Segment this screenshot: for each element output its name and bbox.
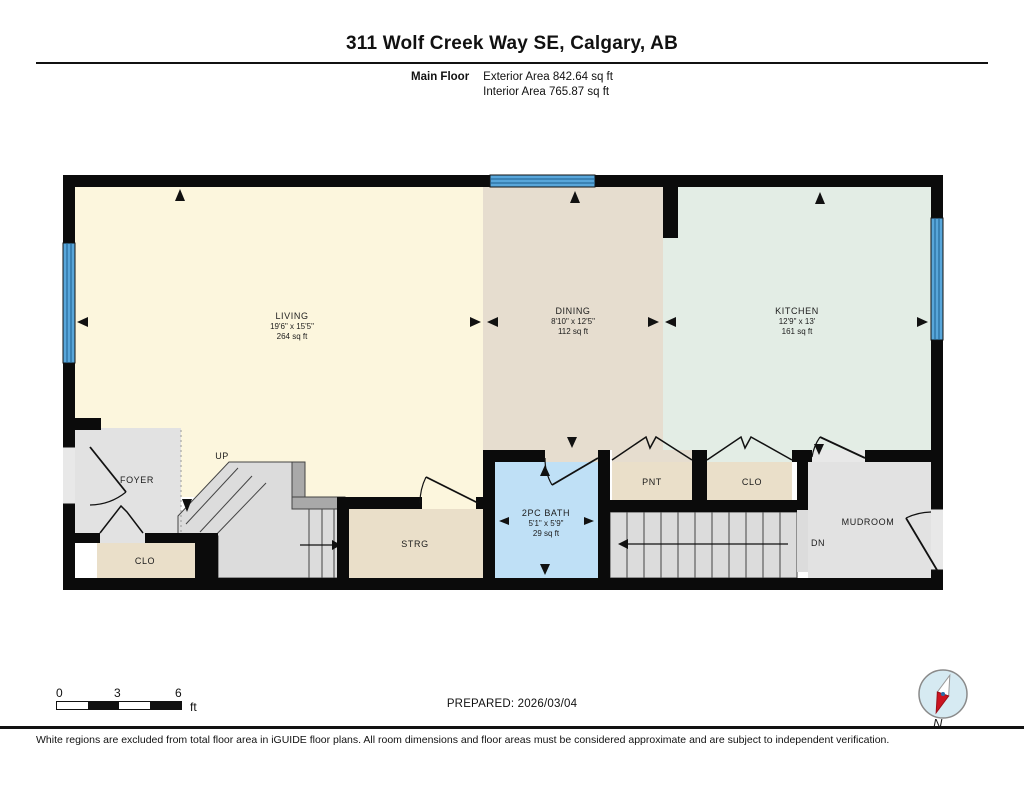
dining-dims: 8'10" x 12'5" <box>551 317 595 326</box>
storage-label: STRG <box>401 539 428 549</box>
living-area: 264 sq ft <box>277 332 308 341</box>
bath-left-wall <box>483 450 495 590</box>
stair-railing <box>292 462 305 498</box>
pantry-closet-wall-stub <box>692 450 707 505</box>
foyer-step-wall <box>63 418 101 430</box>
stairs-down-body <box>610 512 797 578</box>
window-top <box>490 175 595 187</box>
living-dims: 19'6" x 15'5" <box>270 322 314 331</box>
window-left <box>63 243 75 363</box>
bath-right-wall <box>598 450 610 590</box>
dining-label: DINING <box>555 306 590 316</box>
kitchen-label: KITCHEN <box>775 306 819 316</box>
floor-plan: LIVING 19'6" x 15'5" 264 sq ft DINING 8'… <box>0 0 1024 660</box>
dining-area: 112 sq ft <box>558 327 589 336</box>
footer-divider <box>0 726 1024 729</box>
stairs-up-label: UP <box>215 451 229 461</box>
prepared-date: PREPARED: 2026/03/04 <box>0 698 1024 710</box>
foyer-label: FOYER <box>120 475 154 485</box>
stairs-down-label: DN <box>811 538 825 548</box>
floor-plan-svg: LIVING 19'6" x 15'5" 264 sq ft DINING 8'… <box>0 0 1024 660</box>
stairs-down <box>610 512 797 578</box>
foyer-closet-label: CLO <box>135 556 155 566</box>
bath-dims: 5'1" x 5'9" <box>529 519 564 528</box>
storage-left-wall <box>337 497 349 590</box>
compass: N <box>906 666 976 732</box>
kitchen-dims: 12'9" x 13' <box>779 317 816 326</box>
foyer-closet-right-wall <box>195 533 218 590</box>
mudroom-left-wall <box>797 450 808 510</box>
disclaimer-text: White regions are excluded from total fl… <box>36 734 996 746</box>
kitchen-area: 161 sq ft <box>782 327 813 336</box>
bath-area: 29 sq ft <box>533 529 560 538</box>
pantry-label: PNT <box>642 477 662 487</box>
compass-icon: N <box>906 666 976 732</box>
stairs-down-top-wall <box>610 500 797 512</box>
kitchen-closet-label: CLO <box>742 477 762 487</box>
bath-label: 2PC BATH <box>522 508 570 518</box>
dining-kitchen-wall-stub <box>663 187 678 238</box>
living-label: LIVING <box>275 311 308 321</box>
mudroom-label: MUDROOM <box>842 517 895 527</box>
window-right <box>931 218 943 340</box>
